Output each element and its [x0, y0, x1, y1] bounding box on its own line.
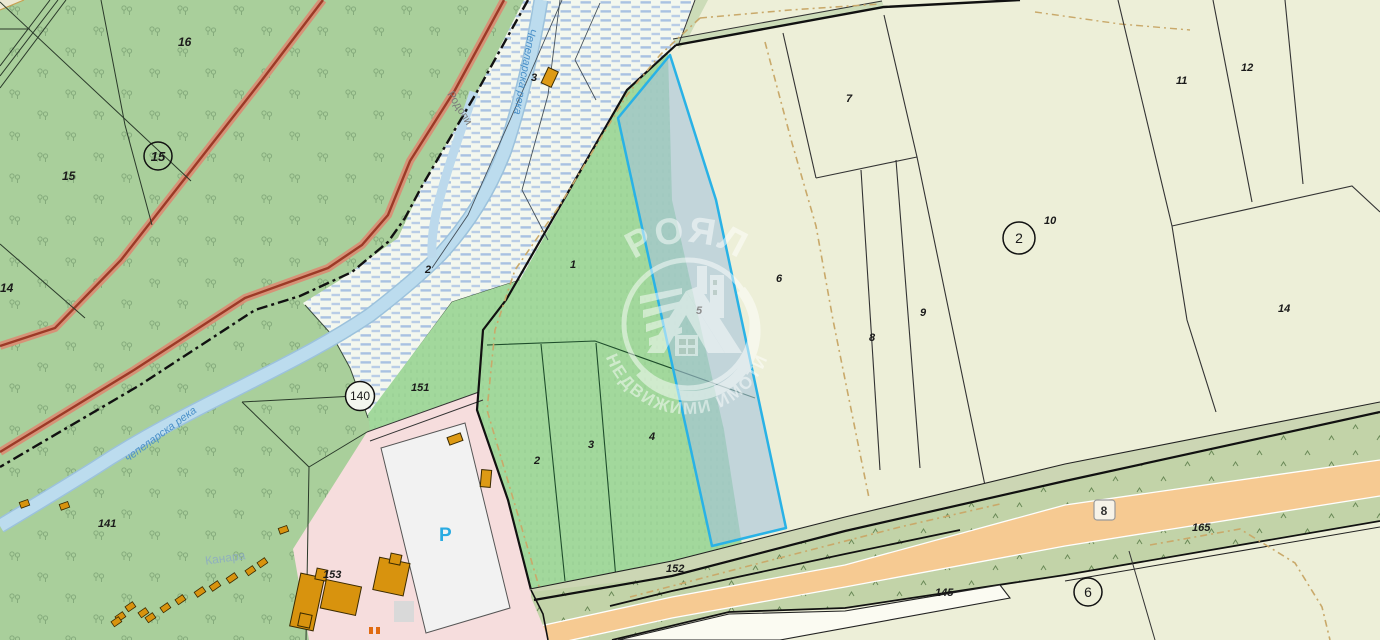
svg-text:6: 6	[776, 273, 783, 285]
svg-text:3: 3	[531, 72, 537, 84]
svg-text:8: 8	[869, 332, 876, 344]
svg-text:141: 141	[98, 518, 116, 530]
svg-text:11: 11	[1176, 75, 1187, 87]
svg-text:10: 10	[1044, 215, 1057, 227]
svg-text:2: 2	[1015, 230, 1023, 246]
svg-text:8: 8	[1101, 504, 1108, 518]
svg-text:7: 7	[846, 93, 853, 105]
svg-text:153: 153	[323, 569, 341, 581]
svg-text:165: 165	[1192, 522, 1211, 534]
svg-text:140: 140	[350, 389, 370, 403]
svg-text:16: 16	[178, 35, 192, 49]
svg-text:1: 1	[570, 259, 576, 271]
svg-text:6: 6	[1084, 584, 1092, 600]
svg-text:151: 151	[411, 382, 429, 394]
svg-text:14: 14	[1278, 303, 1290, 315]
svg-text:9: 9	[920, 307, 927, 319]
svg-text:2: 2	[424, 264, 431, 276]
svg-text:3: 3	[588, 439, 594, 451]
svg-text:4: 4	[648, 431, 655, 443]
svg-text:145: 145	[935, 587, 954, 599]
svg-text:14: 14	[0, 281, 14, 295]
svg-text:2: 2	[533, 455, 540, 467]
svg-text:P: P	[439, 525, 452, 546]
svg-text:12: 12	[1241, 62, 1253, 74]
svg-text:152: 152	[666, 563, 684, 575]
svg-text:15: 15	[151, 149, 166, 164]
svg-text:15: 15	[62, 169, 76, 183]
